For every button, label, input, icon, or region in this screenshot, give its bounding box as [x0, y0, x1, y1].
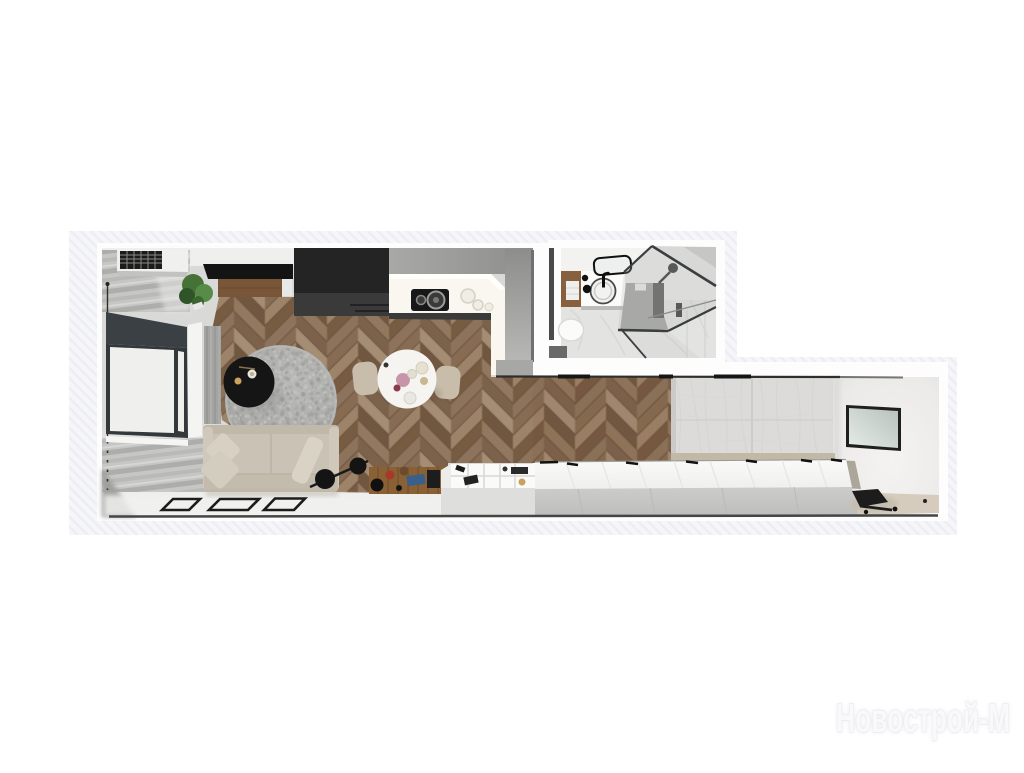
svg-text:Новострой-М: Новострой-М: [836, 695, 1010, 741]
